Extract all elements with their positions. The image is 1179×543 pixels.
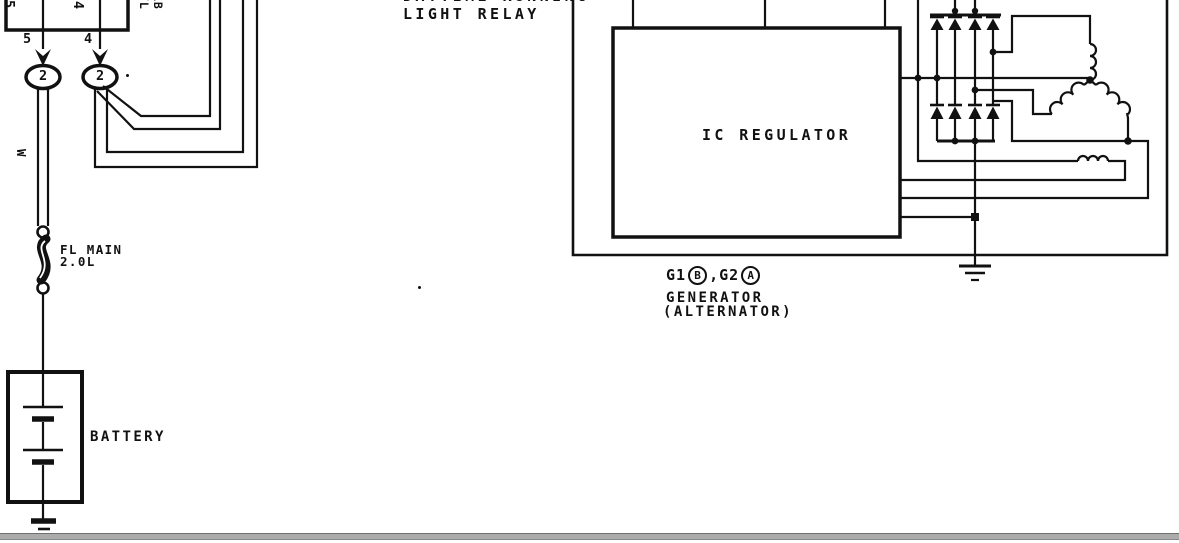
generator-outer-box: [573, 0, 1167, 255]
generator-code-comma: ,: [709, 267, 719, 284]
wire-color-label-w: W: [15, 149, 29, 157]
pin-label-5: 5: [23, 33, 31, 47]
battery-feed-wire: [38, 88, 48, 226]
generator-code-g2: G2: [719, 267, 739, 284]
ground-icon-generator: [959, 266, 991, 280]
generator-code: G1 B , G2 A: [666, 266, 762, 285]
generator-name-line1: GENERATOR: [666, 291, 763, 305]
drl-relay-label-line1: DAYTIME RUNNING: [403, 0, 589, 4]
bottom-window-rule: [0, 533, 1179, 540]
regulator-top-wires: [633, 0, 885, 28]
pin-label-4: 4: [84, 33, 92, 47]
generator-code-g1: G1: [666, 267, 686, 284]
connector-number-left: 2: [39, 70, 47, 84]
battery-label: BATTERY: [90, 430, 166, 444]
branch-outer-wires: [95, 0, 257, 167]
fusible-link-label-line2: 2.0L: [60, 256, 96, 269]
scan-speck: [418, 286, 421, 289]
connector-code-b: B: [688, 266, 707, 285]
scan-speck: [126, 74, 129, 77]
rectifier-bridge: [930, 0, 1001, 141]
generator-name-line2: (ALTERNATOR): [663, 305, 793, 319]
field-coil-icon: [1078, 156, 1108, 161]
ground-icon-battery: [31, 521, 56, 529]
connector-arrow-icon: [35, 49, 108, 66]
wiring-diagram-page: DAYTIME RUNNING LIGHT RELAY IC REGULATOR…: [0, 0, 1179, 543]
connector-number-right: 2: [96, 70, 104, 84]
ic-regulator-label: IC REGULATOR: [702, 128, 851, 143]
side-label-lb: LB: [151, 0, 165, 10]
wiring-diagram-canvas: [0, 0, 1179, 543]
connector-code-a: A: [741, 266, 760, 285]
battery-symbol: [23, 372, 63, 519]
sense-wire: [918, 0, 1078, 161]
junction-dots: [915, 8, 1132, 145]
relay-pin-number-left: 5: [2, 0, 16, 8]
side-label-fl: FL: [137, 0, 151, 10]
fusible-link-icon: [38, 227, 49, 294]
branch-inner-wires: [97, 0, 220, 129]
battery-box: [8, 372, 82, 529]
field-return-wire: [900, 161, 1125, 181]
relay-pin-number-right: 4: [71, 1, 85, 9]
drl-relay-label-line2: LIGHT RELAY: [403, 7, 540, 22]
